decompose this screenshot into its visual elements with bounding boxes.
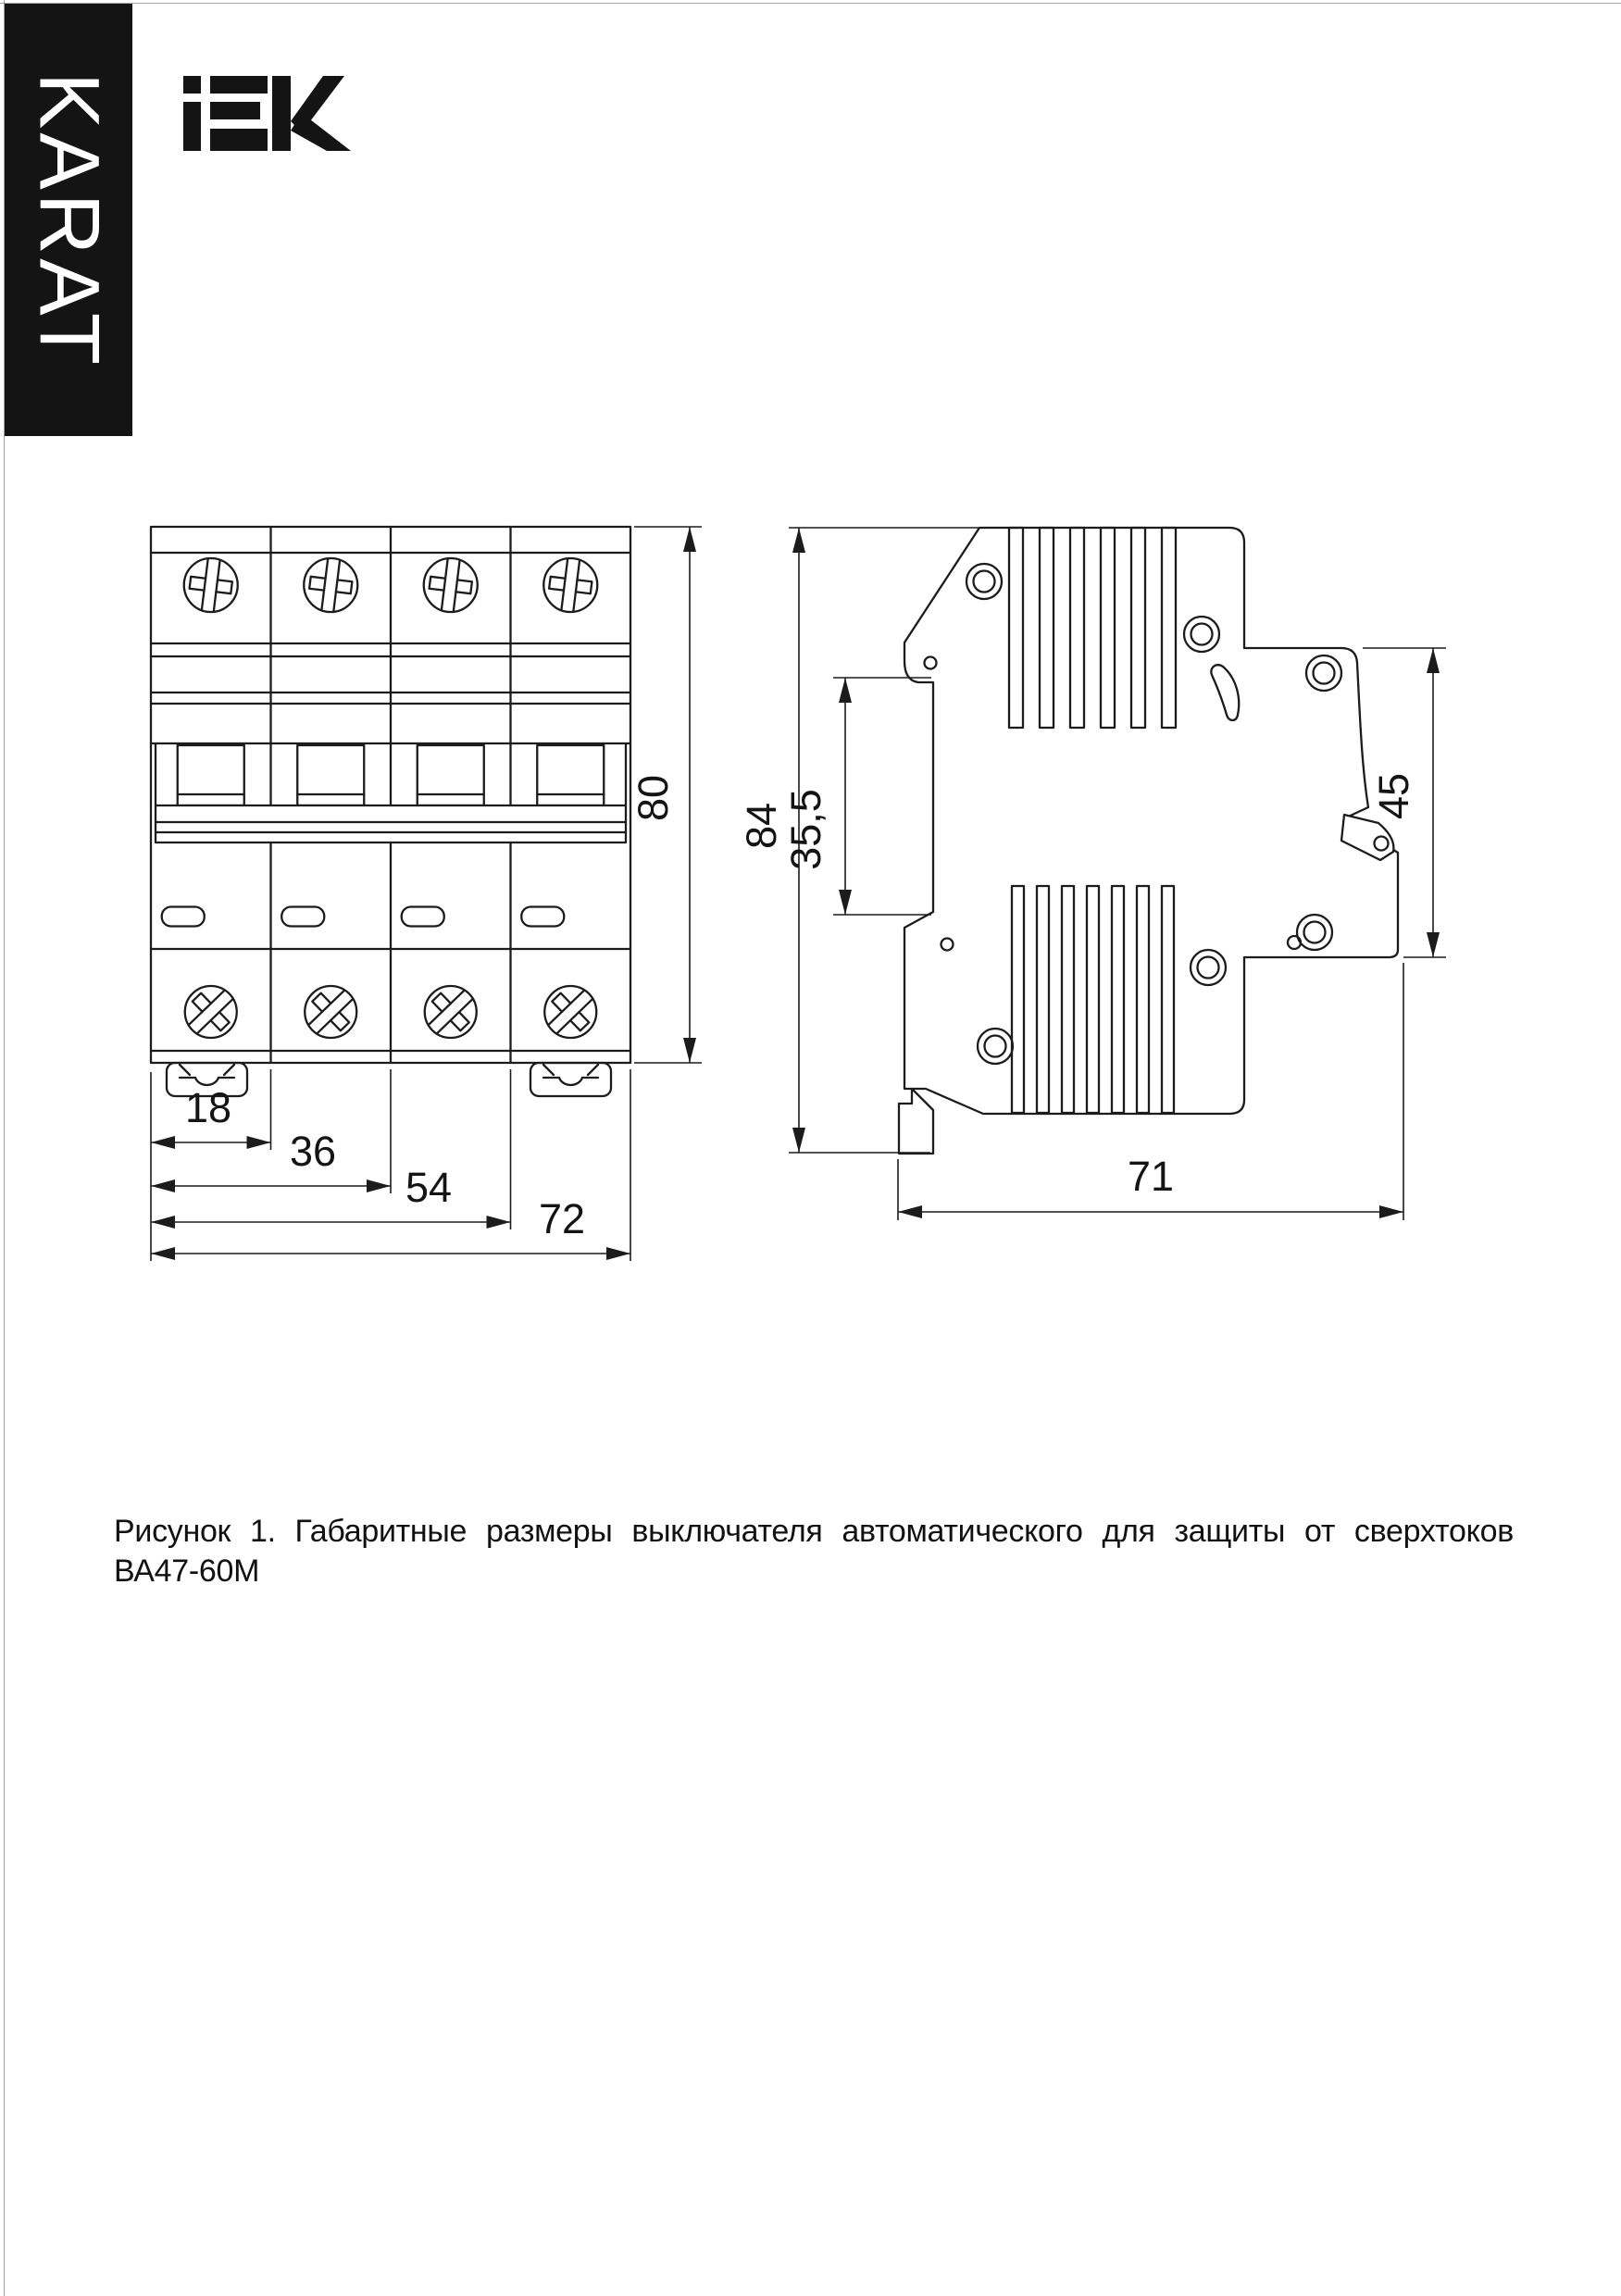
din-clips-front [167, 1063, 611, 1096]
dim-label-total-width: 72 [539, 1195, 585, 1242]
dim-label-depth: 71 [1128, 1153, 1174, 1200]
din-spring-clip [899, 1089, 933, 1154]
dim-label-height: 80 [630, 775, 677, 821]
dim-label-din-recess: 35,5 [782, 789, 829, 870]
dim-label-module-width: 18 [185, 1084, 231, 1131]
dim-label-total-height: 84 [738, 803, 785, 849]
side-view [899, 528, 1398, 1154]
dimension-front-height: 45 [1363, 648, 1446, 957]
marking-windows [162, 907, 565, 927]
dimension-height-84: 84 [738, 528, 979, 1153]
dimension-height-80: 80 [630, 527, 702, 1063]
dimension-depth-71: 71 [898, 963, 1403, 1220]
side-body-outline [904, 528, 1398, 1114]
front-view [151, 527, 630, 1096]
figure-caption: Рисунок 1. Габаритные размеры выключател… [114, 1512, 1514, 1591]
front-view-dimensions: 80 18 36 54 [151, 527, 702, 1261]
vent-slots-top [1009, 528, 1176, 728]
iek-logo-icon [183, 76, 351, 151]
dim-label-two-modules: 36 [290, 1128, 336, 1175]
toggle-tie-bar [156, 805, 626, 842]
toggle-lever [1341, 815, 1393, 860]
curved-slot [1211, 665, 1239, 720]
dimension-din-recess: 35,5 [782, 678, 931, 915]
dim-label-front-height: 45 [1370, 773, 1417, 819]
dimension-drawing: 80 18 36 54 [0, 0, 1621, 2296]
dim-label-three-modules: 54 [405, 1164, 452, 1211]
vent-slots-bottom [1012, 886, 1174, 1113]
side-view-dimensions: 84 35,5 45 71 [738, 528, 1446, 1220]
dimension-width-18: 18 [151, 1069, 271, 1261]
page: { "colors": { "paper": "#ffffff", "ink":… [0, 0, 1621, 2296]
rivet-icons [925, 564, 1342, 1064]
